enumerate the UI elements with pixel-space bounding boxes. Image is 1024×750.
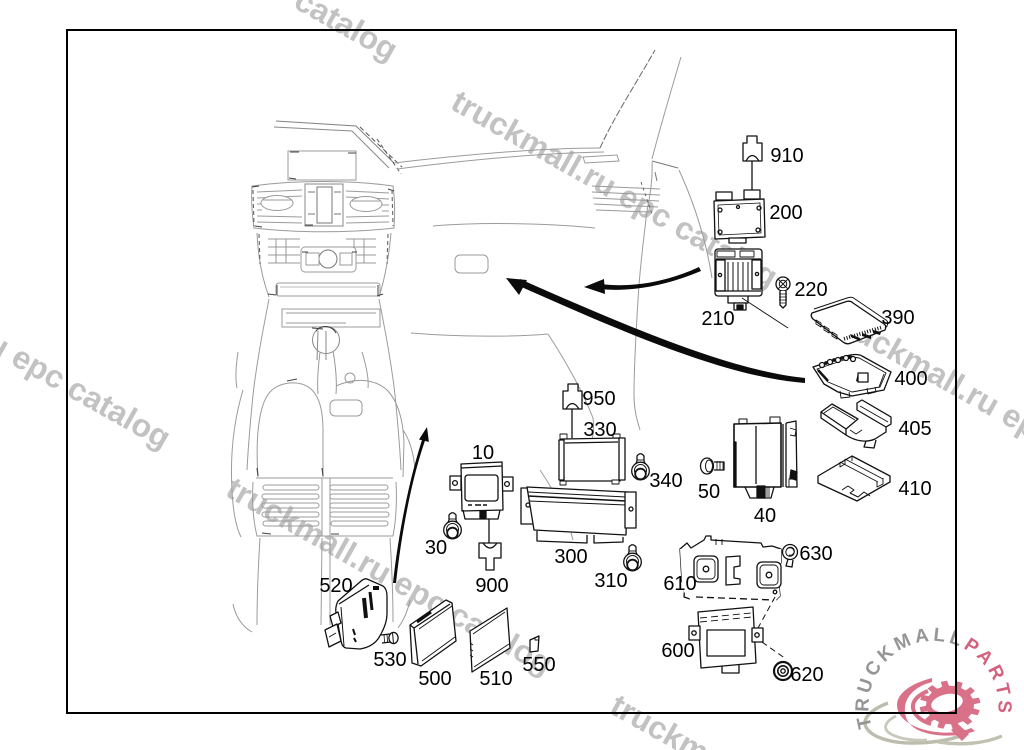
svg-text:530: 530 <box>373 649 406 671</box>
svg-text:510: 510 <box>479 668 512 690</box>
svg-text:500: 500 <box>418 668 451 690</box>
svg-text:550: 550 <box>522 654 555 676</box>
svg-text:910: 910 <box>770 145 803 167</box>
svg-text:400: 400 <box>894 368 927 390</box>
svg-text:950: 950 <box>582 388 615 410</box>
svg-text:210: 210 <box>701 308 734 330</box>
svg-text:630: 630 <box>799 543 832 565</box>
svg-text:220: 220 <box>794 279 827 301</box>
svg-text:200: 200 <box>769 202 802 224</box>
svg-text:610: 610 <box>663 573 696 595</box>
svg-text:310: 310 <box>594 570 627 592</box>
svg-text:410: 410 <box>898 478 931 500</box>
svg-text:300: 300 <box>554 546 587 568</box>
svg-text:520: 520 <box>319 575 352 597</box>
svg-text:30: 30 <box>425 537 447 559</box>
svg-text:390: 390 <box>881 307 914 329</box>
svg-text:10: 10 <box>472 442 494 464</box>
svg-text:50: 50 <box>698 481 720 503</box>
svg-text:900: 900 <box>475 575 508 597</box>
svg-text:620: 620 <box>790 664 823 686</box>
svg-text:340: 340 <box>649 470 682 492</box>
svg-text:330: 330 <box>583 419 616 441</box>
svg-text:405: 405 <box>898 418 931 440</box>
svg-text:40: 40 <box>754 505 776 527</box>
svg-text:600: 600 <box>661 640 694 662</box>
